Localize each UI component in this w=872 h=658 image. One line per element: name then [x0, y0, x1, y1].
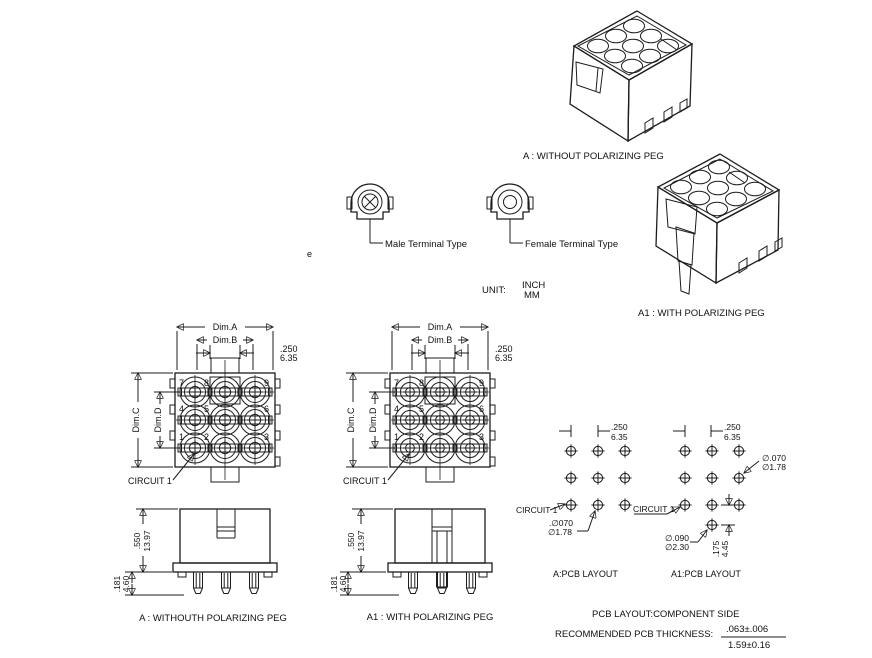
side-view-a: .550 13.97 .181 4.60 A : WITHOUTH POLARI… [112, 509, 287, 624]
notes-block: PCB LAYOUT:COMPONENT SIDE RECOMMENDED PC… [555, 609, 786, 651]
unit-mm: MM [524, 290, 540, 301]
svg-text:6.35: 6.35 [724, 432, 741, 442]
pcb-a-title: A:PCB LAYOUT [553, 569, 618, 579]
svg-text:2: 2 [419, 432, 424, 442]
unit-note: UNIT: INCH MM [482, 280, 545, 301]
male-terminal-symbol: Male Terminal Type [347, 184, 467, 250]
female-terminal-label: Female Terminal Type [525, 239, 618, 250]
thickness-mm: 1.59±0.16 [728, 640, 770, 651]
drawing-sheet: A : WITHOUT POLARIZING PEG A1 : WITH POL… [0, 0, 872, 658]
circuit-number: 7 [179, 378, 184, 388]
dim-a-label: Dim.A [213, 322, 238, 332]
svg-text:6.35: 6.35 [495, 353, 513, 363]
svg-text:Dim.B: Dim.B [428, 335, 453, 345]
iso-view-a1: A1 : WITH POLARIZING PEG [638, 154, 782, 319]
stray-char: e [307, 249, 312, 259]
side-a1-label: A1 : WITH POLARIZING PEG [367, 612, 494, 623]
dim-b-label: Dim.B [213, 335, 238, 345]
svg-text:.550: .550 [346, 532, 356, 549]
dim-c-label: Dim.C [131, 407, 141, 432]
pcb-layout-a1: .250 6.35 ∅.070 ∅1.78 CIRCUIT 1 ∅.090 ∅2… [633, 422, 786, 579]
svg-text:3: 3 [264, 432, 269, 442]
latch-a [576, 62, 603, 93]
peg-hole [705, 518, 718, 531]
svg-text:8: 8 [419, 378, 424, 388]
svg-text:Dim.C: Dim.C [346, 407, 356, 432]
svg-text:CIRCUIT 1: CIRCUIT 1 [343, 476, 387, 486]
component-side-note: PCB LAYOUT:COMPONENT SIDE [592, 609, 739, 620]
engineering-drawing: A : WITHOUT POLARIZING PEG A1 : WITH POL… [0, 0, 872, 658]
side-view-a1: .550 13.97 .181 4.60 A1 : WITH POLARIZIN… [329, 509, 493, 623]
peg-offset-mm: 4.45 [720, 540, 730, 557]
svg-text:1: 1 [179, 432, 184, 442]
thickness-inch: .063±.006 [726, 624, 768, 635]
pcb-hole [564, 444, 577, 457]
svg-text:13.97: 13.97 [356, 530, 366, 552]
peg-dia-mm: ∅2.30 [665, 542, 689, 552]
iso-view-a: A : WITHOUT POLARIZING PEG [523, 11, 692, 162]
svg-text:.250: .250 [611, 422, 628, 432]
svg-text:4: 4 [394, 404, 399, 414]
svg-text:Dim.D: Dim.D [368, 407, 378, 432]
svg-text:.250: .250 [724, 422, 741, 432]
svg-text:9: 9 [264, 378, 269, 388]
pcb-a1-title: A1:PCB LAYOUT [671, 569, 741, 579]
pcb-layout-a: .250 6.35 CIRCUIT 1 .∅070 ∅1.78 A:PCB LA… [516, 422, 632, 579]
svg-text:CIRCUIT 1: CIRCUIT 1 [633, 504, 675, 514]
svg-text:7: 7 [394, 378, 399, 388]
svg-text:9: 9 [479, 378, 484, 388]
svg-text:6: 6 [264, 404, 269, 414]
svg-text:∅1.78: ∅1.78 [762, 462, 786, 472]
svg-text:8: 8 [204, 378, 209, 388]
polarizing-peg-pin [438, 572, 447, 594]
pcb-a-circuit1: CIRCUIT 1 [516, 505, 558, 515]
solder-pin [194, 572, 203, 594]
pitch-mm: 6.35 [280, 353, 298, 363]
svg-text:5: 5 [419, 404, 424, 414]
front-view-a: 7 8 9 4 5 6 1 2 3 Dim.A Dim.B .250 6.35 … [128, 322, 298, 486]
thickness-note: RECOMMENDED PCB THICKNESS: [555, 629, 713, 640]
svg-text:4.60: 4.60 [338, 575, 348, 592]
height-mm: 13.97 [142, 530, 152, 552]
svg-text:1: 1 [394, 432, 399, 442]
svg-text:5: 5 [204, 404, 209, 414]
svg-text:6: 6 [479, 404, 484, 414]
side-a-label: A : WITHOUTH POLARIZING PEG [139, 613, 287, 624]
front-view-a1: 7 8 9 4 5 6 1 2 3 Dim.A Dim.B .250 6.35 … [343, 322, 513, 486]
female-terminal-symbol: Female Terminal Type [487, 184, 618, 250]
svg-text:6.35: 6.35 [611, 432, 628, 442]
dim-d-label: Dim.D [153, 407, 163, 432]
unit-label: UNIT: [482, 285, 506, 296]
svg-text:2: 2 [204, 432, 209, 442]
iso-a1-label: A1 : WITH POLARIZING PEG [638, 308, 765, 319]
circuit1-label: CIRCUIT 1 [128, 476, 172, 486]
male-terminal-label: Male Terminal Type [385, 239, 467, 250]
svg-text:3: 3 [479, 432, 484, 442]
svg-text:4: 4 [179, 404, 184, 414]
height-inch: .550 [132, 532, 142, 549]
svg-text:Dim.A: Dim.A [428, 322, 453, 332]
hole-dia-mm: ∅1.78 [548, 527, 572, 537]
tail-mm: 4.60 [121, 575, 131, 592]
iso-a-label: A : WITHOUT POLARIZING PEG [523, 151, 664, 162]
